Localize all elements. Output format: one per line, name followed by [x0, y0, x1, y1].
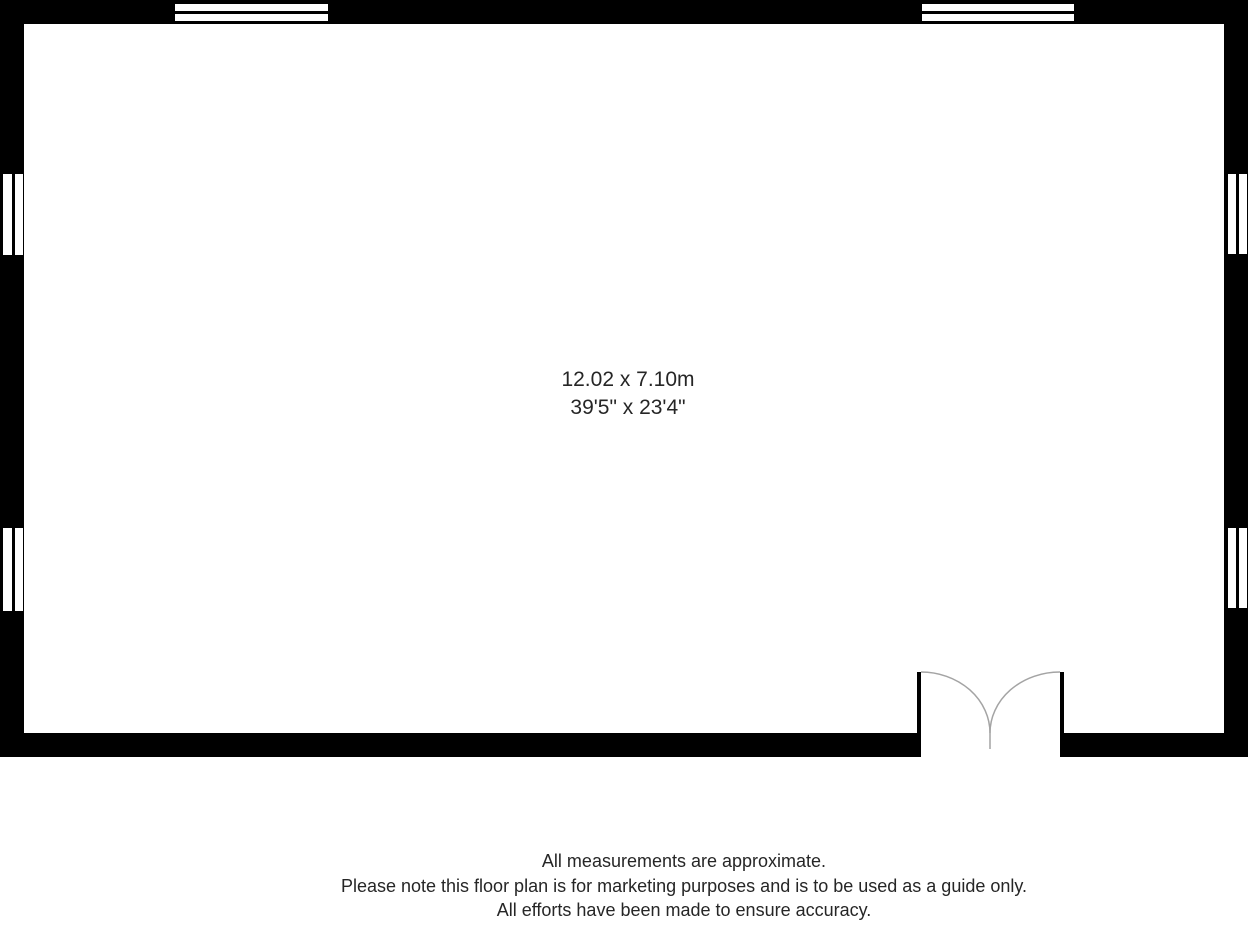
disclaimer-line-1: All measurements are approximate. — [341, 849, 1027, 874]
wall-left — [0, 0, 24, 757]
door-swing-arc-right — [990, 672, 1060, 733]
window-frame-divider — [175, 11, 328, 14]
window-right-lower — [1228, 528, 1247, 608]
window-left-lower — [3, 528, 23, 611]
floorplan-page: 12.02 x 7.10m 39'5" x 23'4" All measurem… — [0, 0, 1248, 928]
window-top-right — [922, 4, 1074, 21]
wall-right — [1224, 0, 1248, 757]
floor-plan: 12.02 x 7.10m 39'5" x 23'4" — [0, 0, 1248, 757]
disclaimer-line-3: All efforts have been made to ensure acc… — [341, 898, 1027, 923]
door-swing-arc-left — [921, 672, 990, 749]
window-frame-divider — [922, 11, 1074, 14]
disclaimer-line-2: Please note this floor plan is for marke… — [341, 874, 1027, 899]
window-top-left — [175, 4, 328, 21]
room-dimensions-imperial: 39'5" x 23'4" — [561, 394, 694, 422]
door-leaf-right — [1060, 672, 1064, 757]
disclaimer: All measurements are approximate. Please… — [341, 849, 1027, 923]
window-frame-divider — [1236, 174, 1239, 254]
wall-bottom-left-segment — [0, 733, 921, 757]
window-frame-divider — [12, 528, 15, 611]
window-frame-divider — [1236, 528, 1239, 608]
window-right-upper — [1228, 174, 1247, 254]
wall-bottom-right-segment — [1064, 733, 1248, 757]
window-left-upper — [3, 174, 23, 255]
door-leaf-left — [917, 672, 921, 757]
window-frame-divider — [12, 174, 15, 255]
room-dimensions-metric: 12.02 x 7.10m — [561, 366, 694, 394]
room-dimensions-label: 12.02 x 7.10m 39'5" x 23'4" — [561, 366, 694, 422]
